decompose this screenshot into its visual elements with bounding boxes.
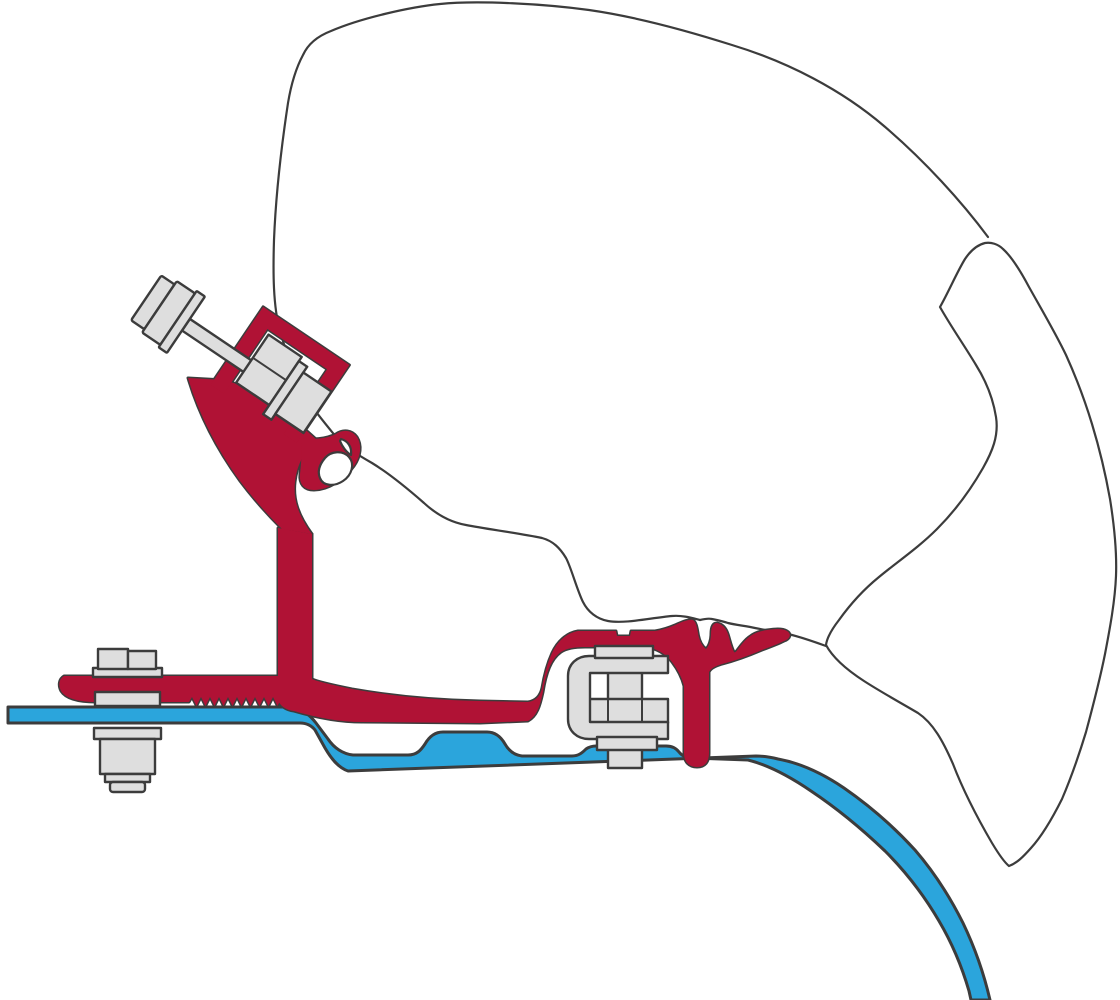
rear-bolt-hex-head-facet-right [128,651,156,669]
awning-adapter-cross-section-diagram [0,0,1120,1000]
central-bolt-bottom-plate [597,737,657,750]
rear-bolt-hex-head-facet-left [98,649,128,669]
central-bolt-hex-nut [588,699,668,723]
adapter-bracket-profile [59,307,790,767]
case-body-outline [274,2,988,646]
central-clamp-bolt [568,646,668,768]
diagram-canvas [0,0,1120,1000]
rear-bolt-flange [94,728,161,739]
central-bolt-top-plate [595,646,653,658]
rear-bolt-nut-body [100,739,155,774]
rear-bolt-clamp-plate [95,692,160,706]
rear-bolt-nut-cap [110,782,145,792]
case-lead-rail-outline [826,243,1116,866]
